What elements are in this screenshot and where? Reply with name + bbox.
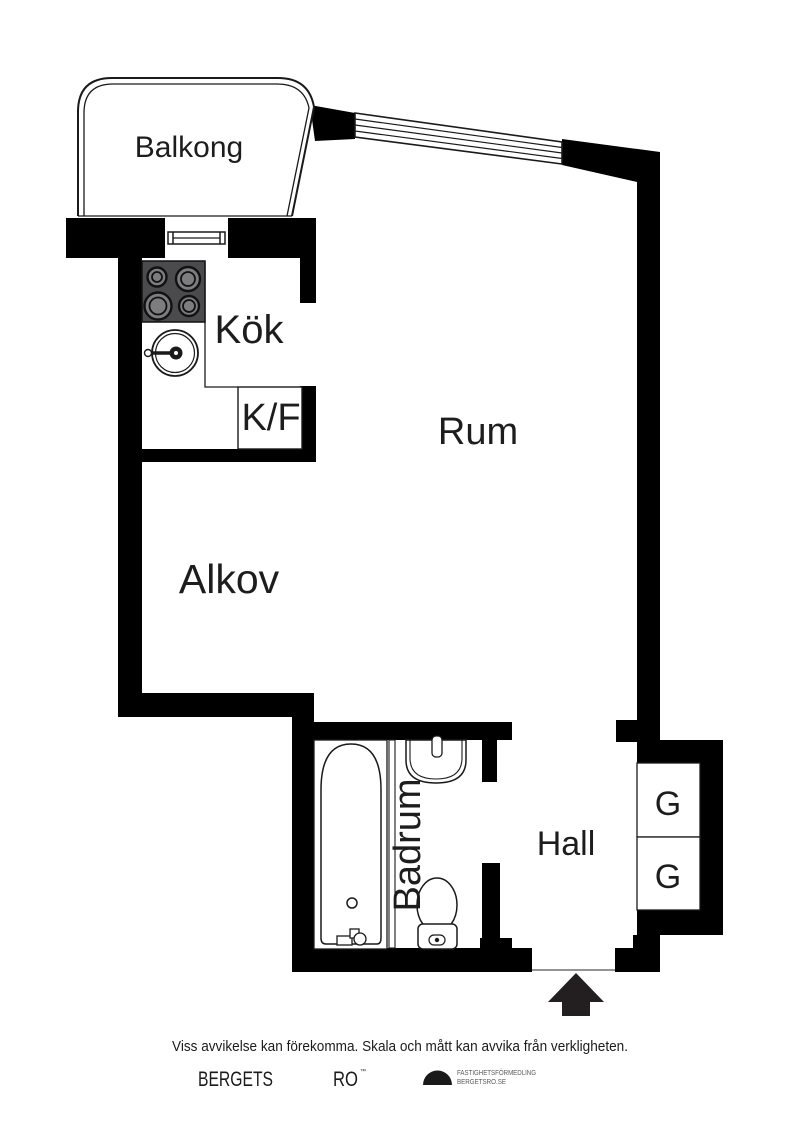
bathroom-sink-tap xyxy=(432,736,442,757)
logo-icon xyxy=(423,1071,452,1086)
wall-kitchen-right-top xyxy=(300,258,316,303)
wall-balcony-bottom-left xyxy=(66,218,165,258)
wall-hall-top-stub xyxy=(616,720,639,742)
faucet-end xyxy=(145,350,152,357)
wall-closet-bottom xyxy=(637,908,723,935)
wall-bottom-main xyxy=(292,948,532,972)
burner xyxy=(181,272,195,286)
kitchen-sink-icon xyxy=(145,330,199,376)
closet-bottom-label: G xyxy=(655,858,681,896)
toilet-button-dot xyxy=(435,938,439,942)
wall-bathroom-right-upper xyxy=(482,740,497,782)
bathtub-drain xyxy=(347,898,357,908)
disclaimer-text: Viss avvikelse kan förekomma. Skala och … xyxy=(172,1038,628,1055)
wall-closet-top xyxy=(637,740,723,763)
burner xyxy=(183,300,195,312)
kitchen-label: Kök xyxy=(215,308,285,352)
bathroom-sink-icon xyxy=(406,736,466,783)
wall-entrance-right xyxy=(633,935,660,972)
wall-balcony-top-right-stub xyxy=(310,105,355,141)
rum-label: Rum xyxy=(438,411,518,453)
alcove-label: Alkov xyxy=(179,556,280,602)
wall-bathroom-top xyxy=(313,722,512,740)
brand-word-ro: RO xyxy=(333,1068,358,1091)
bathroom-label: Badrum xyxy=(387,778,429,911)
closet-top-label: G xyxy=(655,785,681,823)
entrance-arrow-icon xyxy=(548,973,604,1016)
window-rum xyxy=(355,113,562,164)
wall-kitchen-bottom xyxy=(142,449,316,462)
brand-word-bergets: BERGETS xyxy=(198,1068,273,1091)
closets: G G xyxy=(637,763,700,910)
stove-icon xyxy=(142,261,205,322)
wall-closet-right xyxy=(700,763,723,908)
room-hall: Hall xyxy=(532,825,615,1016)
floorplan-page: Balkong Kök K/F Rum xyxy=(0,0,800,1131)
wall-balcony-bottom-right xyxy=(228,218,316,258)
wall-entrance-jamb-left xyxy=(480,938,512,950)
bathtub-faucet-circle xyxy=(354,933,366,945)
brand-trademark: ™ xyxy=(360,1068,366,1075)
wall-alcove-bottom xyxy=(118,693,314,717)
hall-label: Hall xyxy=(537,825,596,863)
room-bathroom: Badrum xyxy=(314,736,466,949)
room-alcove: Alkov xyxy=(179,556,280,602)
floorplan-canvas: Balkong Kök K/F Rum xyxy=(0,0,800,1131)
wall-entrance-jamb-right xyxy=(615,948,633,972)
footer: Viss avvikelse kan förekomma. Skala och … xyxy=(172,1038,628,1091)
burner xyxy=(152,272,162,282)
balcony-label: Balkong xyxy=(135,131,243,164)
sink-drain-dot xyxy=(174,351,178,355)
fridge-freezer-label: K/F xyxy=(241,397,300,439)
wall-left-outer xyxy=(118,258,142,693)
room-rum: Rum xyxy=(438,411,518,453)
bathtub xyxy=(321,744,381,944)
company-line2: BERGETSRO.SE xyxy=(457,1077,506,1086)
wall-right-rum xyxy=(637,162,660,742)
bathtub-icon xyxy=(321,744,381,945)
company-line1: FASTIGHETSFÖRMEDLING xyxy=(457,1068,536,1077)
room-kitchen: Kök K/F xyxy=(142,261,302,449)
wall-bathroom-left xyxy=(292,693,314,972)
burner xyxy=(150,298,167,315)
